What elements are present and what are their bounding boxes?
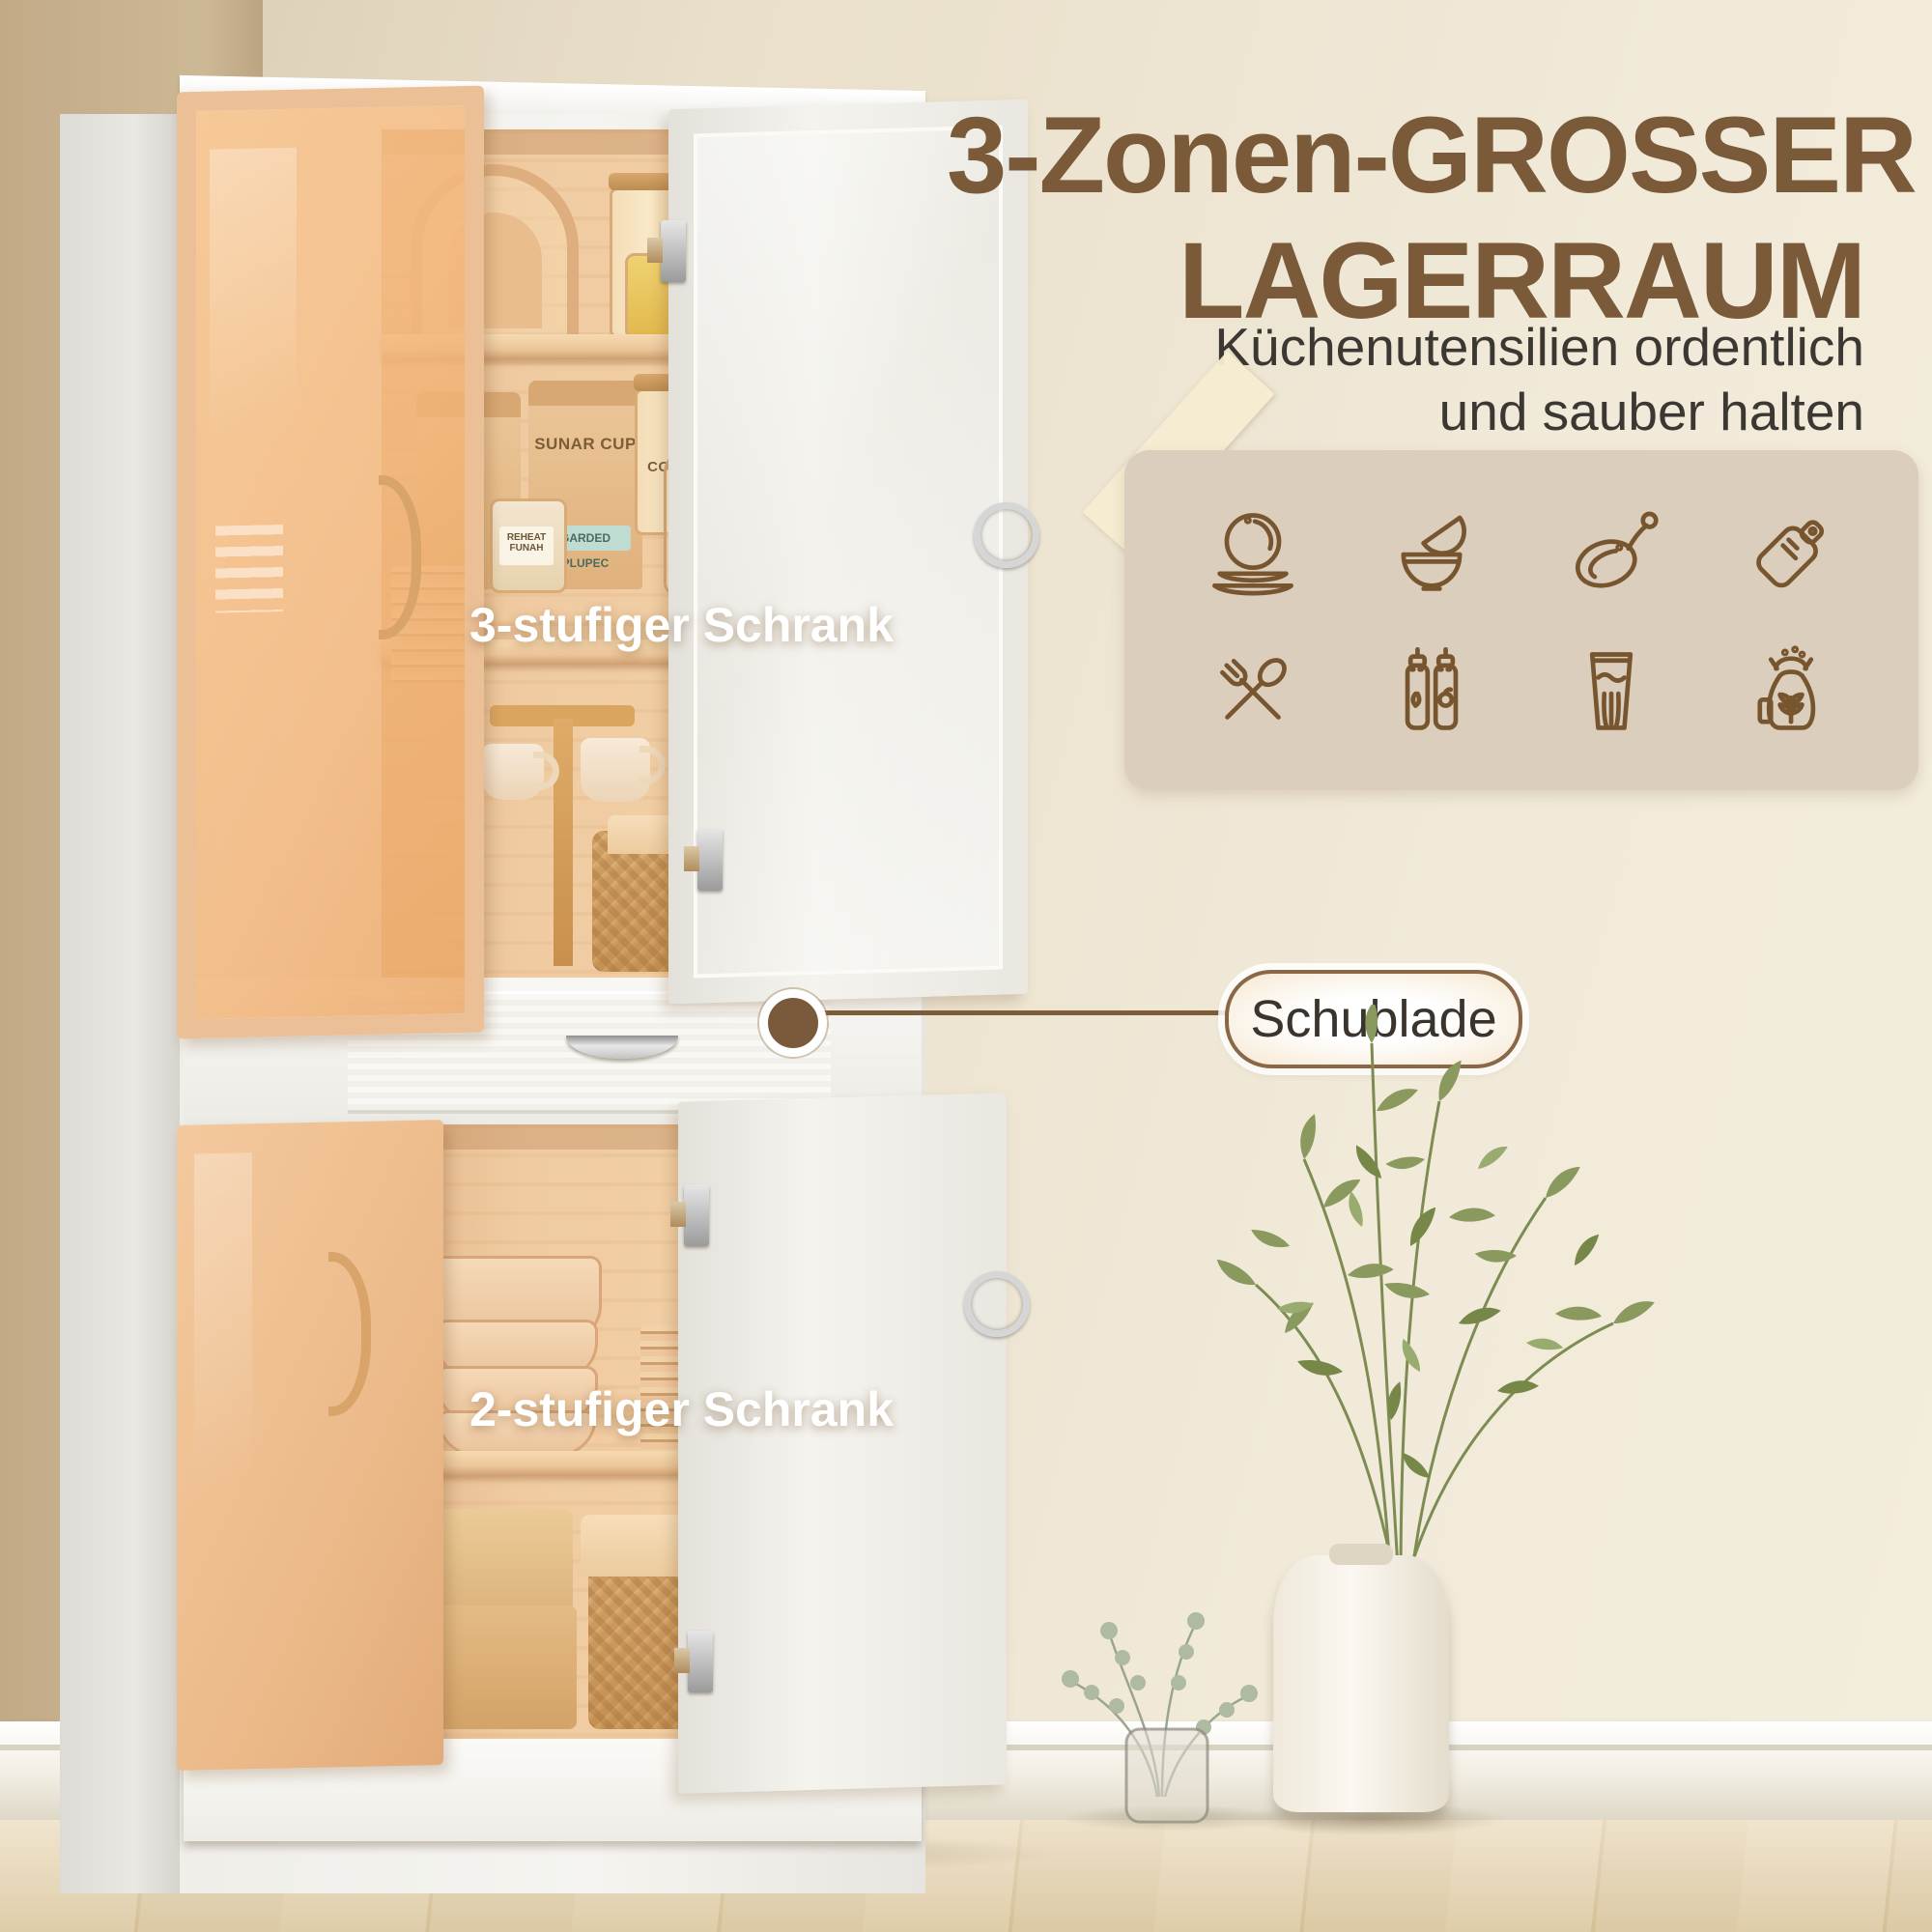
lower-left-door [177, 1120, 443, 1771]
upper-right-door-handle [974, 502, 1039, 568]
subtitle-line2: und sauber halten [947, 380, 1864, 444]
hanging-cup [581, 738, 650, 802]
headline: 3-Zonen-GROSSER LAGERRAUM [947, 93, 1864, 344]
green-plant [1092, 1005, 1710, 1584]
bowls-icon [1381, 502, 1482, 603]
bag-brand-label: SUNAR CUP [528, 435, 642, 454]
subtitle: Küchenutensilien ordentlich und sauber h… [947, 315, 1864, 444]
cutlery-icon [1203, 641, 1303, 742]
plates-behind-glass [215, 525, 283, 612]
flour-bag-icon [1740, 641, 1840, 742]
door-hinge [697, 829, 723, 891]
product-scene: SUNAR CUP GARDED PLUPEC CORNMI HOLE OAT … [0, 0, 1932, 1932]
spice-jar-label: REHEAT FUNAH [499, 526, 554, 565]
plates-icon [1203, 502, 1303, 603]
mug-rack-post [554, 719, 573, 966]
callout-dot [759, 989, 827, 1057]
sauce-bottles-icon [1381, 641, 1482, 742]
subtitle-line1: Küchenutensilien ordentlich [947, 315, 1864, 380]
cutting-board-icon [1740, 502, 1840, 603]
lower-right-door [678, 1093, 1007, 1793]
white-vase-mouth [1329, 1544, 1393, 1565]
lower-right-door-handle [964, 1271, 1030, 1337]
frying-pan-icon [1561, 502, 1662, 603]
spice-jar: REHEAT FUNAH [490, 498, 567, 593]
lower-cabinet-caption: 2-stufiger Schrank [469, 1381, 894, 1437]
upper-left-glass-door [177, 86, 484, 1039]
drinking-glass-icon [1561, 641, 1662, 742]
feature-icon-panel [1124, 450, 1918, 790]
white-vase [1273, 1555, 1449, 1812]
hanging-cup [482, 744, 544, 800]
upper-cabinet-caption: 3-stufiger Schrank [469, 597, 894, 653]
headline-line1: 3-Zonen-GROSSER [947, 93, 1864, 218]
door-hinge [684, 1184, 709, 1246]
eucalyptus-vase [1041, 1507, 1293, 1826]
door-hinge [688, 1631, 713, 1692]
cabinet-left-side-panel [60, 114, 184, 1893]
door-hinge [661, 220, 686, 282]
door-sheen [194, 1152, 252, 1714]
